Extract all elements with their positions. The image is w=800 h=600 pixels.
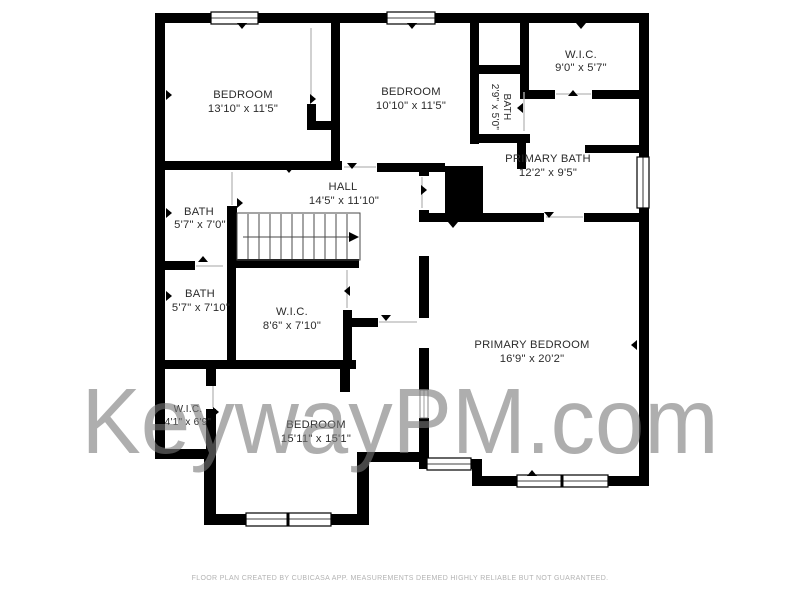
stairs	[237, 213, 360, 260]
room-label-bedroom-top-left: BEDROOM 13'10" x 11'5"	[208, 89, 278, 115]
svg-text:8'6" x 7'10": 8'6" x 7'10"	[263, 320, 321, 332]
svg-text:2'9" x 5'0": 2'9" x 5'0"	[489, 84, 500, 131]
svg-text:BEDROOM: BEDROOM	[381, 86, 441, 98]
stair-direction-arrow	[349, 232, 359, 242]
floor-plan: BEDROOM 13'10" x 11'5" BEDROOM 10'10" x …	[0, 0, 800, 600]
room-label-primary-bedroom: PRIMARY BEDROOM 16'9" x 20'2"	[474, 339, 589, 365]
svg-text:BATH: BATH	[185, 288, 215, 300]
disclaimer-text: FLOOR PLAN CREATED BY CUBICASA APP. MEAS…	[192, 575, 609, 582]
svg-text:BATH: BATH	[184, 206, 214, 218]
svg-text:14'5" x 11'10": 14'5" x 11'10"	[309, 195, 379, 207]
window	[387, 12, 435, 24]
svg-text:PRIMARY BEDROOM: PRIMARY BEDROOM	[474, 339, 589, 351]
floor-plan-page: BEDROOM 13'10" x 11'5" BEDROOM 10'10" x …	[0, 0, 800, 600]
svg-text:HALL: HALL	[329, 181, 358, 193]
room-label-hall: HALL 14'5" x 11'10"	[309, 181, 379, 207]
room-label-wic-center: W.I.C. 8'6" x 7'10"	[263, 306, 321, 332]
svg-text:5'7" x 7'0": 5'7" x 7'0"	[174, 219, 226, 231]
svg-text:16'9" x 20'2": 16'9" x 20'2"	[500, 353, 565, 365]
svg-text:PRIMARY BATH: PRIMARY BATH	[505, 153, 591, 165]
svg-text:5'7" x 7'10": 5'7" x 7'10"	[172, 302, 230, 314]
svg-text:W.I.C.: W.I.C.	[565, 49, 597, 61]
svg-text:10'10" x 11'5": 10'10" x 11'5"	[376, 100, 446, 112]
window	[517, 475, 608, 487]
svg-text:BATH: BATH	[501, 94, 512, 121]
watermark: KeywayPM.com	[82, 369, 719, 473]
svg-text:13'10" x 11'5": 13'10" x 11'5"	[208, 103, 278, 115]
room-label-water-closet: BATH 2'9" x 5'0"	[489, 84, 512, 131]
svg-text:W.I.C.: W.I.C.	[276, 306, 308, 318]
svg-text:BEDROOM: BEDROOM	[213, 89, 273, 101]
room-label-bath-upper-left: BATH 5'7" x 7'0"	[174, 206, 226, 231]
room-label-wic-top-right: W.I.C. 9'0" x 5'7"	[555, 49, 607, 74]
room-label-bedroom-top-middle: BEDROOM 10'10" x 11'5"	[376, 86, 446, 112]
window	[637, 157, 649, 208]
window	[211, 12, 258, 24]
svg-text:9'0" x 5'7": 9'0" x 5'7"	[555, 62, 607, 74]
room-label-bath-lower-left: BATH 5'7" x 7'10"	[172, 288, 230, 314]
window	[246, 513, 331, 526]
svg-text:12'2" x 9'5": 12'2" x 9'5"	[519, 167, 577, 179]
shaft	[445, 166, 483, 218]
